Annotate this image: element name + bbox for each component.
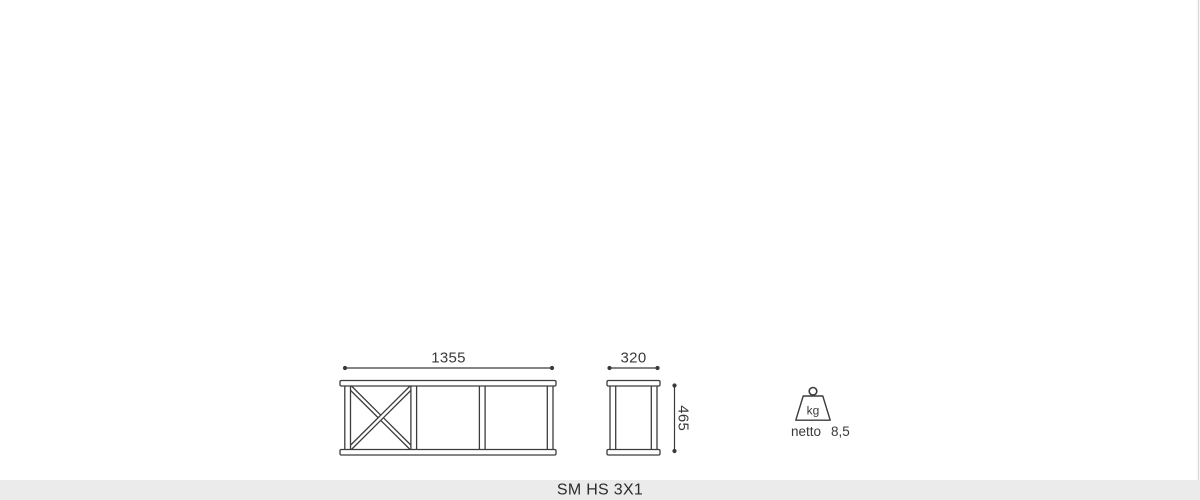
- weight-unit-label: kg: [807, 404, 820, 418]
- dimension-dot: [672, 383, 676, 387]
- front-right-post: [547, 385, 553, 450]
- weight-value: 8,5: [831, 424, 850, 439]
- side-depth-label: 320: [621, 350, 647, 367]
- front-width-dimension: 1355: [343, 350, 554, 371]
- technical-drawing: 1355 320 465 kg: [0, 0, 1200, 500]
- side-view: [607, 381, 660, 456]
- dimension-dot: [343, 366, 347, 370]
- product-dimension-sheet: 1355 320 465 kg: [0, 0, 1200, 500]
- weight-spec: kg netto 8,5: [791, 388, 850, 440]
- side-right-post: [651, 385, 657, 450]
- side-height-dimension: 465: [672, 383, 691, 453]
- front-view: [340, 381, 556, 456]
- weight-netto-label: netto: [791, 424, 821, 439]
- side-depth-dimension: 320: [607, 350, 659, 371]
- dimension-dot: [607, 366, 611, 370]
- front-width-label: 1355: [431, 350, 466, 367]
- weight-kg-icon: kg: [796, 388, 830, 421]
- side-left-post: [610, 385, 616, 450]
- weight-ring: [809, 388, 817, 396]
- dimension-dot: [550, 366, 554, 370]
- product-name: SM HS 3X1: [557, 482, 643, 499]
- front-bottom-rail: [340, 450, 556, 456]
- front-divider-1: [411, 385, 417, 450]
- dimension-dot: [672, 449, 676, 453]
- x-brace: [350, 387, 412, 448]
- front-left-post: [345, 385, 351, 450]
- side-top-rail: [607, 381, 660, 387]
- front-divider-2: [479, 385, 485, 450]
- side-height-label: 465: [675, 405, 692, 431]
- side-bottom-rail: [607, 450, 660, 456]
- dimension-dot: [655, 366, 659, 370]
- footer-bar: SM HS 3X1: [0, 480, 1200, 500]
- front-top-rail: [340, 381, 556, 387]
